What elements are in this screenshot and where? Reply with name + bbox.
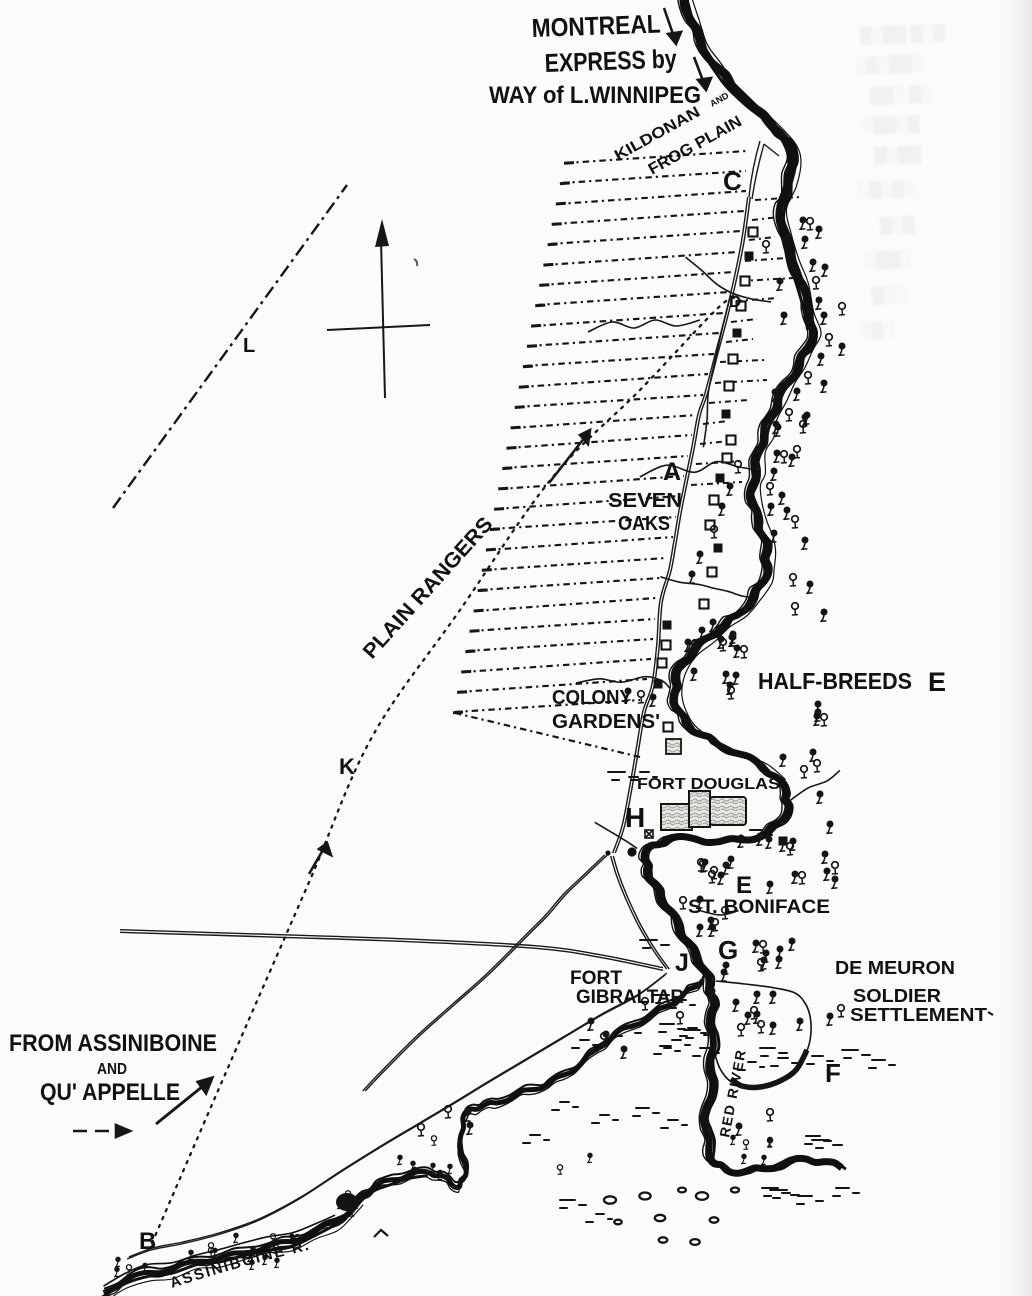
svg-text:▒▓▒: ▒▓▒ [860,320,896,340]
svg-text:FORT DOUGLAS: FORT DOUGLAS [637,776,780,793]
svg-text:C: C [723,166,742,196]
svg-text:COLONY: COLONY [552,687,633,709]
svg-text:E: E [928,667,946,697]
svg-text:F: F [825,1058,841,1088]
svg-text:DE MEURON: DE MEURON [835,958,955,978]
svg-text:▓▒▓▓: ▓▒▓▓ [875,144,922,165]
svg-text:OAKS: OAKS [618,513,670,535]
svg-text:H: H [625,802,645,833]
svg-text:HALF-BREEDS: HALF-BREEDS [758,668,912,694]
svg-text:GARDENS': GARDENS' [552,711,660,733]
svg-text:QU' APPELLE: QU' APPELLE [40,1079,180,1106]
svg-text:GIBRALTAR: GIBRALTAR [576,987,684,1008]
svg-text:E: E [736,872,752,899]
svg-text:B: B [139,1228,156,1255]
svg-text:AND: AND [97,1061,127,1078]
svg-text:WAY of L.WINNIPEG: WAY of L.WINNIPEG [489,82,701,109]
svg-text:▓▒▒: ▓▒▒ [872,285,908,305]
svg-text:J: J [675,949,689,977]
svg-text:D: D [729,292,741,311]
svg-text:EXPRESS by: EXPRESS by [544,43,677,78]
svg-text:FROM ASSINIBOINE: FROM ASSINIBOINE [9,1030,217,1057]
svg-text:K: K [339,754,355,779]
svg-text:▓▒▓: ▓▒▓ [880,215,916,235]
svg-text:ST. BONIFACE: ST. BONIFACE [688,897,830,918]
svg-text:▒▓▒▓▒: ▒▓▒▓▒ [858,179,917,200]
svg-text:G: G [718,935,738,965]
svg-text:L: L [243,335,255,357]
svg-text:FORT: FORT [570,968,622,989]
svg-text:▓▓▒ ▓▒: ▓▓▒ ▓▒ [870,84,933,105]
svg-text:SETTLEMENT: SETTLEMENT [850,1005,987,1025]
svg-text:▒▓▒▓▓▒: ▒▓▒▓▓▒ [855,54,925,75]
svg-text:SOLDIER: SOLDIER [853,986,941,1006]
svg-text:▒▓▓▒▓: ▒▓▓▒▓ [862,114,921,135]
svg-text:A: A [663,458,681,486]
svg-text:▒▓▓▒: ▒▓▓▒ [865,249,912,270]
svg-text:SEVEN: SEVEN [608,490,682,512]
svg-text:MONTREAL: MONTREAL [531,9,661,43]
